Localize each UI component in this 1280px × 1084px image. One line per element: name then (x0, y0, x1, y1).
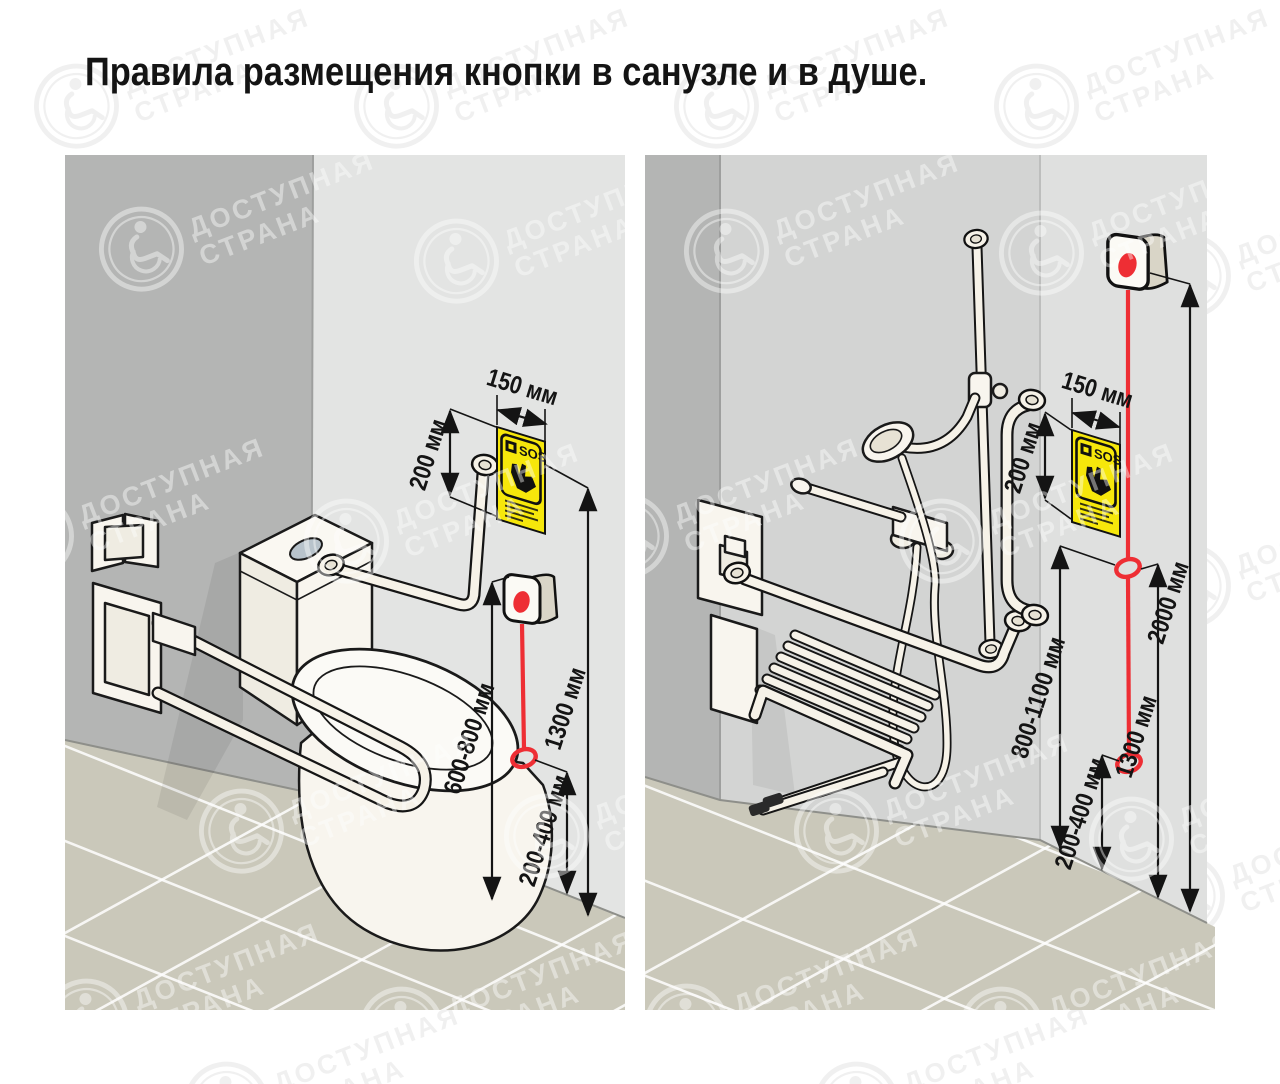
pull-cord (522, 624, 524, 749)
side-wall (645, 155, 720, 800)
shower-room-illustration: 150 мм 200 мм 800-1100 мм 1300 мм 2000 м… (645, 155, 1215, 1010)
toilet-room-illustration: 150 мм 200 мм 600-800 мм 1300 мм 200-400… (65, 155, 625, 1010)
poster-page: { "title": "Правила размещения кнопки в … (0, 0, 1280, 1084)
page-title: Правила размещения кнопки в санузле и в … (85, 50, 927, 95)
